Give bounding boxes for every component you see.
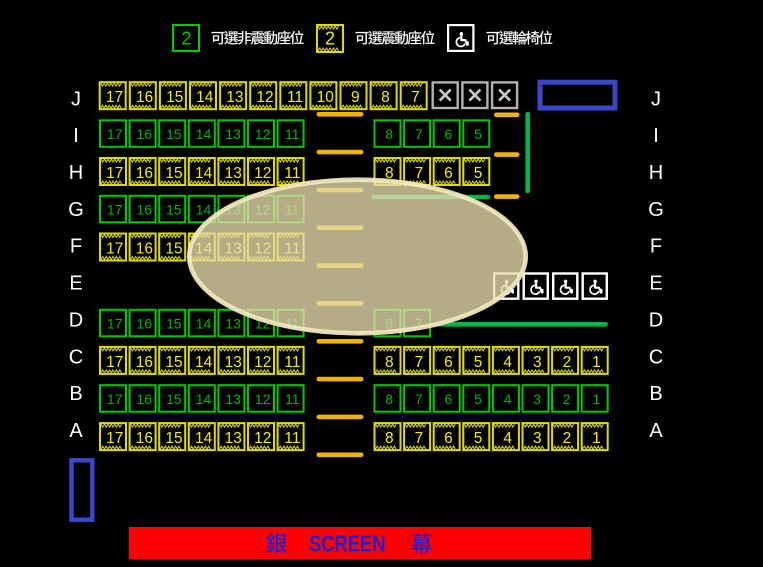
svg-text:16: 16 [136,89,153,106]
svg-text:2: 2 [325,29,335,49]
svg-text:15: 15 [165,241,182,258]
svg-text:17: 17 [107,126,123,142]
svg-text:F: F [650,236,662,258]
svg-text:3: 3 [533,430,542,447]
svg-text:17: 17 [106,165,123,182]
svg-text:9: 9 [351,89,360,106]
svg-text:11: 11 [284,430,300,447]
svg-text:7: 7 [415,165,424,182]
svg-text:A: A [69,420,83,442]
svg-text:11: 11 [287,89,303,106]
svg-text:13: 13 [225,354,242,371]
svg-text:15: 15 [165,430,182,447]
svg-text:I: I [653,125,659,147]
svg-text:17: 17 [106,354,123,371]
svg-text:5: 5 [474,165,483,182]
svg-text:12: 12 [254,354,271,371]
svg-text:3: 3 [533,391,541,407]
svg-text:8: 8 [385,391,393,407]
svg-text:17: 17 [106,89,123,106]
svg-text:E: E [649,273,662,295]
svg-text:13: 13 [225,165,242,182]
svg-text:14: 14 [196,391,212,407]
svg-text:4: 4 [503,430,512,447]
svg-text:2: 2 [563,430,572,447]
svg-text:12: 12 [255,391,271,407]
svg-text:12: 12 [254,430,271,447]
svg-text:15: 15 [165,354,182,371]
svg-text:16: 16 [137,316,153,332]
svg-text:2: 2 [181,29,191,49]
svg-text:16: 16 [137,126,153,142]
svg-text:1: 1 [592,430,601,447]
svg-text:3: 3 [533,354,542,371]
svg-text:14: 14 [196,316,212,332]
svg-text:I: I [73,125,79,147]
svg-text:14: 14 [196,89,214,106]
svg-text:16: 16 [136,165,153,182]
svg-text:17: 17 [107,391,123,407]
svg-text:2: 2 [563,354,572,371]
svg-text:14: 14 [195,430,213,447]
svg-text:11: 11 [284,354,300,371]
svg-text:C: C [69,346,83,368]
svg-text:10: 10 [317,89,335,106]
svg-text:12: 12 [256,89,273,106]
svg-text:6: 6 [444,430,453,447]
svg-text:14: 14 [195,165,213,182]
svg-text:5: 5 [474,126,482,142]
svg-text:12: 12 [254,165,271,182]
svg-text:D: D [649,310,663,332]
svg-text:15: 15 [166,316,182,332]
svg-text:13: 13 [225,391,241,407]
svg-text:17: 17 [106,241,123,258]
svg-text:6: 6 [445,126,453,142]
svg-text:B: B [69,383,82,405]
svg-text:13: 13 [225,430,242,447]
svg-text:16: 16 [136,430,153,447]
svg-text:B: B [649,383,662,405]
svg-text:1: 1 [593,391,601,407]
svg-text:11: 11 [285,391,300,407]
svg-text:5: 5 [474,354,483,371]
svg-text:J: J [71,88,81,110]
svg-text:8: 8 [385,126,393,142]
svg-text:6: 6 [444,354,453,371]
svg-text:16: 16 [136,241,153,258]
svg-text:1: 1 [592,354,601,371]
svg-text:SCREEN: SCREEN [309,531,386,557]
svg-text:11: 11 [285,126,300,142]
svg-text:13: 13 [226,89,243,106]
svg-text:7: 7 [415,430,424,447]
svg-text:J: J [651,88,661,110]
svg-text:H: H [69,162,83,184]
svg-text:16: 16 [136,354,153,371]
svg-text:15: 15 [166,126,182,142]
svg-text:14: 14 [196,202,212,218]
svg-text:14: 14 [196,126,212,142]
svg-text:8: 8 [381,89,390,106]
svg-text:6: 6 [444,165,453,182]
svg-text:4: 4 [503,354,512,371]
svg-text:7: 7 [415,126,423,142]
svg-text:13: 13 [225,316,241,332]
svg-text:G: G [68,199,84,221]
svg-text:12: 12 [255,126,271,142]
svg-text:17: 17 [106,430,123,447]
svg-text:5: 5 [474,391,482,407]
svg-text:17: 17 [107,202,123,218]
svg-text:7: 7 [411,89,420,106]
svg-text:G: G [648,199,664,221]
svg-text:14: 14 [195,354,213,371]
svg-text:5: 5 [474,430,483,447]
svg-text:F: F [70,236,82,258]
svg-text:8: 8 [385,430,394,447]
svg-text:8: 8 [385,354,394,371]
svg-text:15: 15 [165,165,182,182]
svg-text:15: 15 [166,89,183,106]
svg-text:7: 7 [415,354,424,371]
svg-text:7: 7 [415,391,423,407]
svg-text:11: 11 [284,165,300,182]
svg-text:E: E [69,273,82,295]
svg-text:16: 16 [137,202,153,218]
svg-text:C: C [649,346,663,368]
svg-text:D: D [69,310,83,332]
svg-text:17: 17 [107,316,123,332]
svg-text:4: 4 [504,391,512,407]
svg-text:15: 15 [166,202,182,218]
svg-text:15: 15 [166,391,182,407]
svg-text:2: 2 [563,391,571,407]
svg-text:A: A [649,420,663,442]
svg-text:13: 13 [225,126,241,142]
svg-text:H: H [649,162,663,184]
svg-text:16: 16 [137,391,153,407]
svg-text:6: 6 [445,391,453,407]
